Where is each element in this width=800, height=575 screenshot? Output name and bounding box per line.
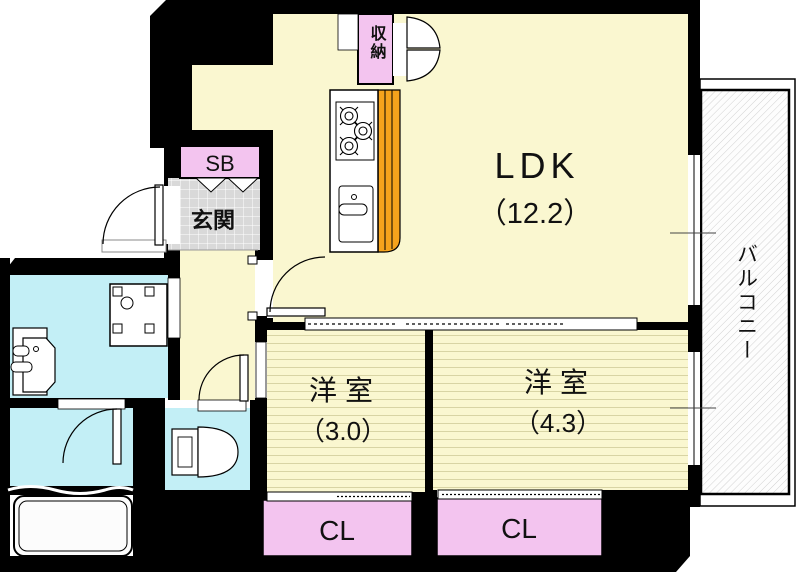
bedroom-small-size: （3.0） bbox=[299, 416, 387, 446]
stove-icon bbox=[336, 102, 374, 160]
hallway-bedroom-opening bbox=[256, 342, 266, 398]
kitchen-orange-band bbox=[378, 90, 400, 252]
washroom-sliding-door bbox=[168, 278, 180, 338]
bedroom-large-size: （4.3） bbox=[514, 408, 602, 438]
ldk-label: LDK bbox=[494, 145, 579, 186]
bathtub-icon bbox=[8, 487, 133, 557]
closet-right-door bbox=[438, 490, 602, 499]
kitchen-sink-icon bbox=[339, 186, 373, 242]
pipe-space-box bbox=[338, 14, 358, 50]
closet-right-label: CL bbox=[501, 513, 537, 544]
ldk-size: （12.2） bbox=[478, 198, 592, 230]
closet-left-door bbox=[267, 492, 412, 501]
toilet-icon bbox=[172, 427, 238, 477]
shoebox-label: SB bbox=[205, 151, 234, 176]
ldk-floor-notch bbox=[192, 65, 273, 130]
floorplan: LDK （12.2） 洋室 （3.0） 洋室 （4.3） CL CL SB 玄関… bbox=[0, 0, 800, 575]
entrance-label: 玄関 bbox=[191, 208, 235, 233]
closet-left-label: CL bbox=[319, 515, 355, 546]
bedroom-small-label: 洋室 bbox=[309, 375, 381, 406]
entry-door bbox=[102, 185, 180, 252]
kitchen-counter bbox=[330, 90, 400, 252]
ldk-bedroom-sliding-doors bbox=[305, 318, 637, 330]
balcony-label: バルコニー bbox=[735, 243, 758, 363]
storage-label: 収納 bbox=[368, 25, 387, 61]
washer-pan-icon bbox=[110, 284, 167, 346]
bedroom-large-label: 洋室 bbox=[524, 367, 596, 398]
bedroom-small-floor bbox=[267, 330, 425, 492]
